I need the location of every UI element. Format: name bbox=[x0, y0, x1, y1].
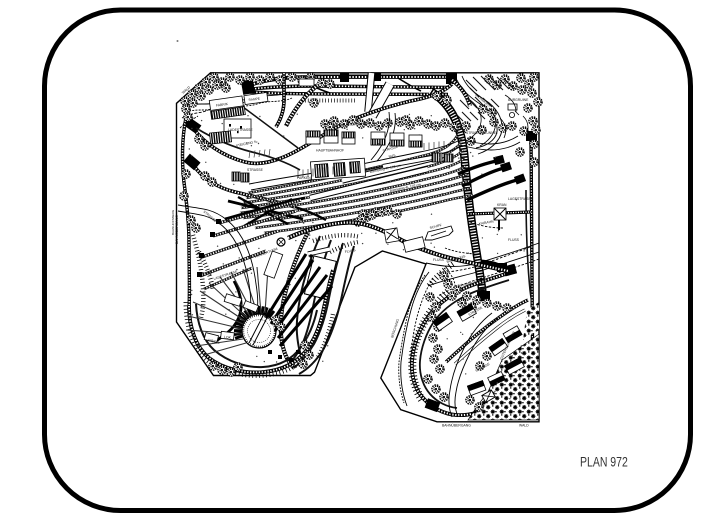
svg-text:HAUPTBAHNHOF: HAUPTBAHNHOF bbox=[316, 149, 344, 153]
svg-text:FLUSS: FLUSS bbox=[508, 238, 520, 242]
svg-text:FLUSS: FLUSS bbox=[433, 258, 445, 262]
svg-text:PLAN 972: PLAN 972 bbox=[580, 454, 628, 470]
svg-text:WALD: WALD bbox=[519, 424, 529, 428]
svg-text:LADESTRASSE: LADESTRASSE bbox=[228, 128, 253, 132]
svg-text:KRAN: KRAN bbox=[497, 203, 507, 207]
svg-text:LAGESTRASSE: LAGESTRASSE bbox=[508, 197, 534, 201]
svg-text:BAHNÜBERGANG: BAHNÜBERGANG bbox=[442, 424, 471, 428]
svg-text:BAHNÜBERGANG: BAHNÜBERGANG bbox=[175, 215, 179, 244]
svg-text:BAHNHOFSBERG: BAHNHOFSBERG bbox=[171, 209, 175, 235]
svg-text:STELLWERK: STELLWERK bbox=[297, 75, 318, 79]
svg-text:PARKEN: PARKEN bbox=[297, 176, 311, 180]
svg-text:BURGRUINE: BURGRUINE bbox=[508, 98, 529, 102]
svg-text:STRASSENTUNNEL: STRASSENTUNNEL bbox=[466, 131, 498, 135]
svg-text:STRASSE: STRASSE bbox=[247, 168, 264, 172]
